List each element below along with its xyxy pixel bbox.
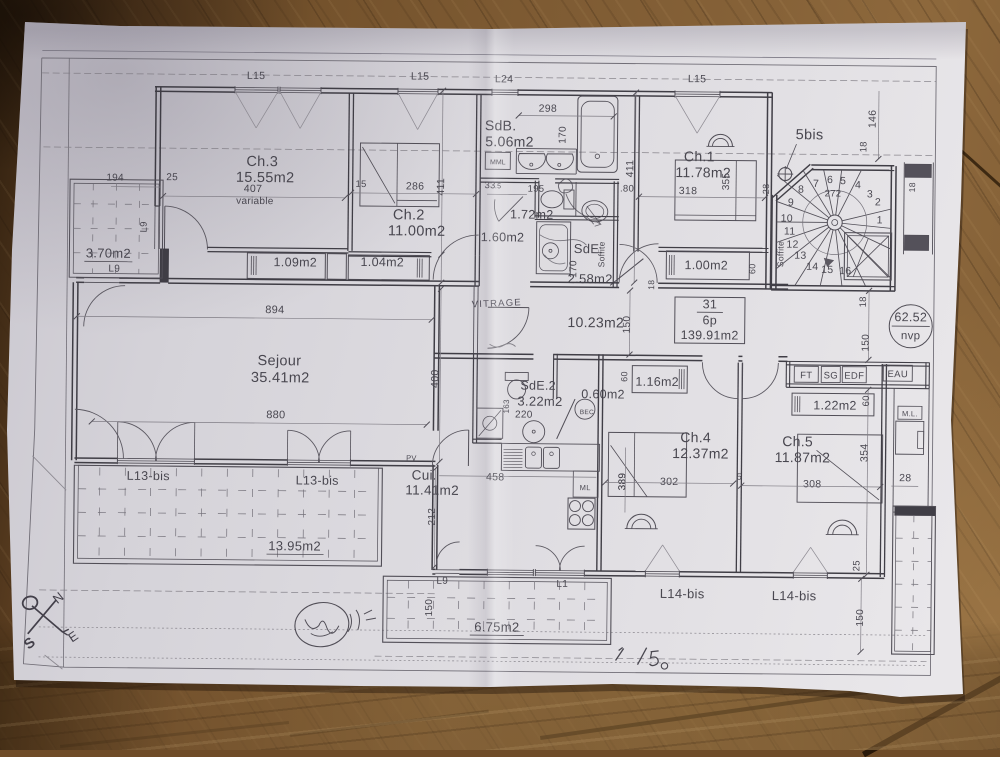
svg-text:8: 8 [798,184,804,196]
svg-text:1.16m2: 1.16m2 [635,375,679,389]
svg-text:5bis: 5bis [796,127,824,143]
svg-text:12.37m2: 12.37m2 [672,445,729,462]
svg-text:L13-bis: L13-bis [127,469,170,483]
svg-text:SG: SG [824,370,838,381]
svg-text:308: 308 [803,478,822,490]
svg-text:L9: L9 [108,264,120,275]
svg-text:60: 60 [747,263,757,274]
svg-text:139.91m2: 139.91m2 [681,328,739,343]
svg-text:2: 2 [875,196,881,208]
svg-text:Soffite: Soffite [775,241,785,267]
svg-text:6.75m2: 6.75m2 [474,619,519,634]
svg-text:M.L.: M.L. [902,409,918,418]
svg-text:.80: .80 [620,183,634,194]
svg-text:1.00m2: 1.00m2 [685,258,729,272]
svg-text:15: 15 [821,264,833,276]
svg-text:Ch.1: Ch.1 [684,148,715,164]
svg-text:286: 286 [406,180,425,192]
svg-text:6p: 6p [702,313,717,327]
svg-text:15.55m2: 15.55m2 [236,170,295,187]
svg-text:411: 411 [624,160,636,178]
svg-text:894: 894 [265,304,284,316]
svg-text:VITRAGE: VITRAGE [472,297,523,310]
svg-text:11: 11 [784,226,796,238]
svg-text:389: 389 [617,473,628,491]
svg-text:Soffite: Soffite [596,241,606,267]
svg-text:3: 3 [867,188,873,200]
svg-text:18: 18 [646,280,656,290]
svg-text:272: 272 [825,188,842,199]
svg-text:25: 25 [166,172,178,183]
svg-text:L9: L9 [139,221,150,232]
svg-text:10: 10 [781,213,793,225]
svg-text:150: 150 [622,316,633,334]
svg-text:146: 146 [867,110,879,129]
svg-text:3.22m2: 3.22m2 [517,393,562,408]
svg-text:2.58m2: 2.58m2 [568,271,613,286]
svg-text:11.78m2: 11.78m2 [675,164,731,181]
svg-text:9: 9 [788,197,794,209]
svg-text:1.04m2: 1.04m2 [361,255,405,269]
svg-text:SdE.2: SdE.2 [520,379,556,393]
svg-text:25: 25 [851,560,862,571]
svg-text:L14-bis: L14-bis [772,588,817,603]
svg-text:194: 194 [106,173,124,184]
svg-text:7: 7 [813,178,819,190]
svg-text:5: 5 [840,175,846,187]
svg-text:28: 28 [761,184,771,195]
svg-text:302: 302 [660,476,679,488]
svg-text:MML: MML [490,159,506,166]
svg-text:L15: L15 [411,70,430,82]
svg-text:1.22m2: 1.22m2 [813,398,857,412]
svg-text:1.72m2: 1.72m2 [510,207,554,221]
svg-text:458: 458 [486,471,505,483]
svg-text:10.23m2: 10.23m2 [567,314,624,331]
svg-text:L15: L15 [688,73,707,85]
svg-text:18: 18 [858,141,869,152]
svg-text:6: 6 [827,174,833,186]
svg-text:14: 14 [806,261,818,273]
svg-text:354: 354 [858,444,870,463]
svg-text:13.95m2: 13.95m2 [268,538,321,554]
svg-text:150: 150 [424,599,435,617]
svg-text:170: 170 [557,126,568,144]
svg-text:18: 18 [907,182,917,192]
svg-text:28: 28 [899,472,911,484]
svg-text:298: 298 [539,103,558,115]
svg-text:1.09m2: 1.09m2 [274,255,318,269]
svg-text:Sejour: Sejour [257,353,301,369]
svg-text:150: 150 [855,609,866,627]
svg-text:PV: PV [406,453,417,462]
svg-text:1: 1 [877,214,883,226]
svg-text:L13-bis: L13-bis [296,473,339,487]
svg-text:35.41m2: 35.41m2 [251,370,310,387]
svg-text:318: 318 [679,185,698,197]
svg-text:Cui.: Cui. [412,467,437,482]
svg-text:13: 13 [794,250,806,262]
svg-text:11.41m2: 11.41m2 [405,482,459,498]
svg-text:.5: .5 [495,183,502,190]
svg-text:16: 16 [839,265,851,277]
svg-text:880: 880 [266,409,285,421]
svg-text:BEC: BEC [580,409,594,416]
svg-text:1.60m2: 1.60m2 [481,230,525,244]
svg-text:5: 5 [737,472,742,482]
svg-text:5.06m2: 5.06m2 [485,133,534,149]
svg-text:Ch.4: Ch.4 [680,429,711,445]
svg-text:163: 163 [502,399,511,414]
svg-text:Ch.3: Ch.3 [246,154,278,170]
svg-text:L15: L15 [247,70,266,82]
svg-text:SdB.: SdB. [485,117,517,133]
svg-text:L1: L1 [556,579,568,590]
svg-text:L9: L9 [436,576,448,587]
svg-text:150: 150 [861,334,872,352]
svg-text:220: 220 [515,409,533,420]
svg-text:4: 4 [855,179,861,191]
svg-text:EDF: EDF [844,371,864,382]
svg-text:ML: ML [580,483,591,492]
svg-text:L14-bis: L14-bis [660,586,705,601]
svg-text:E: E [65,628,81,645]
svg-text:EAU: EAU [888,369,909,380]
svg-text:31: 31 [703,297,718,311]
svg-text:400: 400 [429,369,441,388]
svg-text:15: 15 [355,179,366,190]
svg-text:FT: FT [800,370,812,381]
svg-text:60: 60 [861,395,872,406]
svg-text:3.70m2: 3.70m2 [86,245,131,260]
svg-text:nvp: nvp [901,330,921,342]
svg-text:60: 60 [619,371,629,382]
svg-text:variable: variable [236,196,274,207]
svg-text:L24: L24 [495,73,514,85]
svg-text:411: 411 [435,178,447,196]
svg-text:62.52: 62.52 [894,310,927,324]
svg-text:195: 195 [528,184,545,195]
svg-text:18: 18 [858,296,869,307]
svg-text:Ch.5: Ch.5 [782,433,813,449]
svg-text:Ch.2: Ch.2 [393,207,425,223]
svg-text:11.87m2: 11.87m2 [775,449,831,466]
svg-text:212: 212 [427,508,438,526]
svg-text:11.00m2: 11.00m2 [388,223,446,240]
